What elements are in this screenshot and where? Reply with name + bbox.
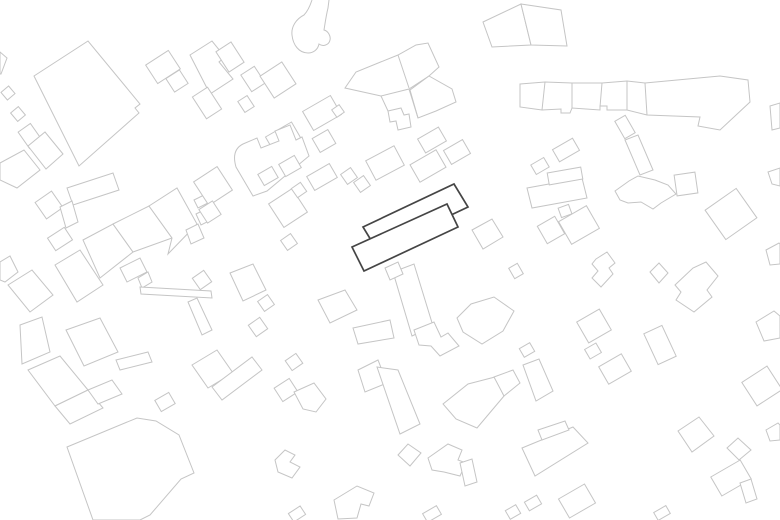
building-footprint [766,243,780,265]
building-footprint [410,150,446,182]
building-footprint [727,438,751,460]
building-footprint [705,188,757,239]
site-plan [0,0,780,520]
building-footprint [60,201,78,228]
building-footprint [35,191,63,219]
building-footprint [281,234,298,251]
building-footprint [585,343,602,359]
building-footprint [260,62,296,98]
building-footprint [67,418,194,520]
context-buildings [0,4,780,520]
party-wall-line [381,96,388,111]
building-footprint [366,146,405,180]
building-footprint [520,76,750,130]
building-footprint [674,172,698,196]
building-footprint [20,317,50,364]
building-footprint [1,86,15,100]
building-footprint [531,158,549,175]
building-footprint [443,377,504,428]
building-footprint [353,320,394,344]
building-footprint [766,423,780,441]
building-footprint [66,318,118,366]
building-footprint [388,108,411,130]
building-footprint [519,343,534,358]
building-footprint [230,264,266,301]
building-footprint [740,479,757,503]
building-footprint [116,352,152,370]
building-footprint [524,495,541,511]
building-footprint [428,444,466,476]
building-footprint [398,444,421,466]
building-footprint [11,107,26,122]
building-footprint [258,295,275,312]
building-footprint [67,173,119,205]
building-footprint [192,87,221,119]
building-footprint [294,383,326,412]
building-footprint [457,297,514,344]
building-footprint [553,138,580,162]
building-footprint [505,505,520,520]
building-footprint [460,459,477,486]
building-footprint [615,115,635,138]
building-footprint [768,168,780,186]
building-footprint [523,359,553,401]
building-footprint [625,135,653,175]
building-footprint [48,227,73,250]
building-footprint [414,322,459,356]
building-footprint [318,290,357,323]
building-footprint [248,317,267,336]
building-footprint [312,130,336,153]
building-footprint [577,309,612,343]
building-footprint [472,219,503,249]
building-footprint [274,378,298,401]
building-footprint [423,506,442,520]
building-footprint [155,392,175,411]
building-footprint [0,256,18,282]
building-footprint [418,127,447,153]
building-footprint [678,417,714,452]
building-footprint [599,354,632,384]
building-footprint [334,486,374,519]
building-footprint [192,270,211,289]
building-footprint [275,450,300,478]
building-footprint [559,484,596,518]
building-footprint [509,263,524,278]
building-footprint [770,103,780,130]
building-footprint [188,298,212,335]
building-footprint [0,150,40,188]
building-footprint [644,325,676,364]
highlighted-building [352,184,468,271]
building-footprint [377,367,420,434]
stream-lobe-outline [292,0,330,53]
building-footprint [288,506,305,520]
building-footprint [238,96,254,113]
building-footprint [615,176,676,209]
building-footprint [650,263,668,283]
building-footprint [592,252,615,287]
building-footprint [307,164,338,191]
site-plan-svg [0,0,780,520]
building-footprint [285,353,303,370]
building-footprint [8,270,53,312]
building-footprint [0,52,7,74]
building-footprint [654,506,671,520]
building-footprint [675,262,718,312]
building-footprint [742,366,780,406]
building-footprint [444,140,471,165]
building-footprint [756,311,780,341]
